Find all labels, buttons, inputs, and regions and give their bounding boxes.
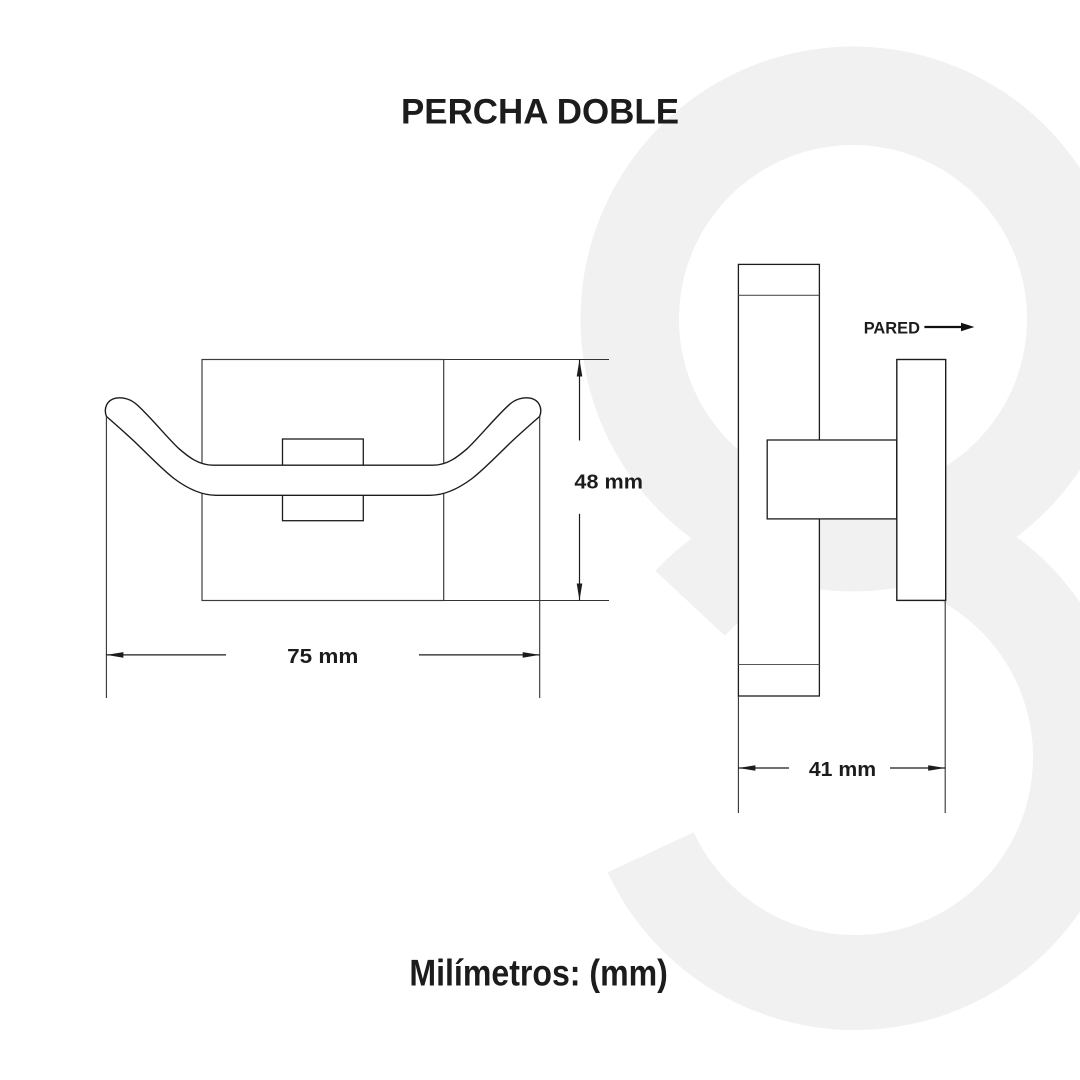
svg-text:PERCHA DOBLE: PERCHA DOBLE <box>401 93 679 132</box>
svg-text:41 mm: 41 mm <box>809 758 876 781</box>
svg-text:Milímetros: (mm): Milímetros: (mm) <box>409 952 668 994</box>
svg-text:75 mm: 75 mm <box>287 645 358 668</box>
svg-text:48 mm: 48 mm <box>574 471 643 494</box>
svg-text:PARED: PARED <box>864 319 920 337</box>
